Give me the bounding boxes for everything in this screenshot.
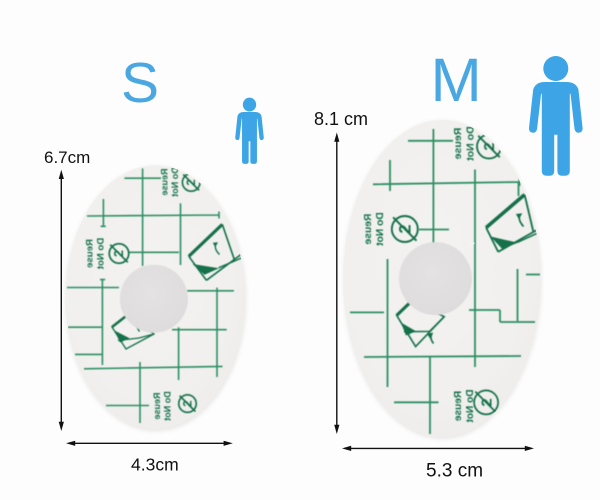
svg-text:8.1 cm: 8.1 cm [314, 109, 368, 129]
svg-text:S: S [121, 51, 159, 115]
svg-text:4.3cm: 4.3cm [131, 455, 179, 475]
svg-text:5.3 cm: 5.3 cm [426, 461, 483, 482]
svg-text:6.7cm: 6.7cm [44, 148, 90, 167]
svg-text:M: M [431, 46, 482, 115]
